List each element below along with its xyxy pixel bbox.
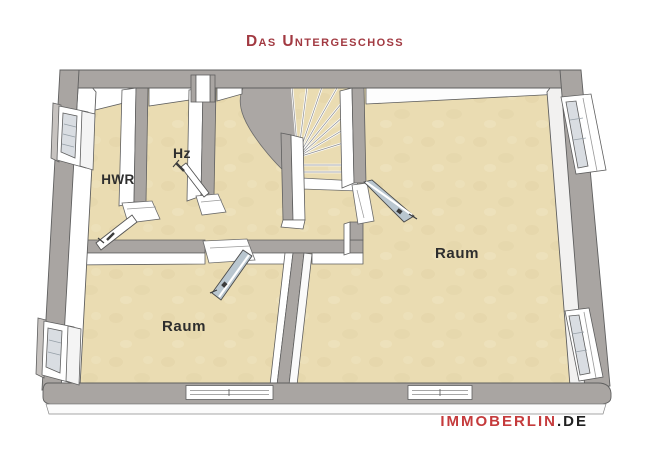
brand-logo: IMMOBERLIN.DE: [440, 413, 588, 430]
window-room-left-west: [36, 318, 81, 385]
room-label-hz: Hz: [173, 145, 191, 161]
brand-tld: .DE: [557, 413, 588, 430]
wall-bottom: [43, 383, 611, 404]
room-label-raum-left: Raum: [162, 318, 206, 335]
floorplan-drawing: HWR Hz Raum Raum: [0, 0, 650, 463]
window-hwr-west: [51, 103, 95, 170]
window-room-left-south: [186, 386, 273, 400]
room-label-raum-right: Raum: [435, 245, 479, 262]
floorplan-page: Das Untergeschoss: [0, 0, 650, 463]
niche-window-top: [191, 75, 215, 102]
wall-top: [60, 70, 580, 88]
window-room-right-south: [408, 386, 472, 400]
room-label-hwr: HWR: [101, 172, 134, 187]
brand-name: IMMOBERLIN: [440, 413, 557, 430]
